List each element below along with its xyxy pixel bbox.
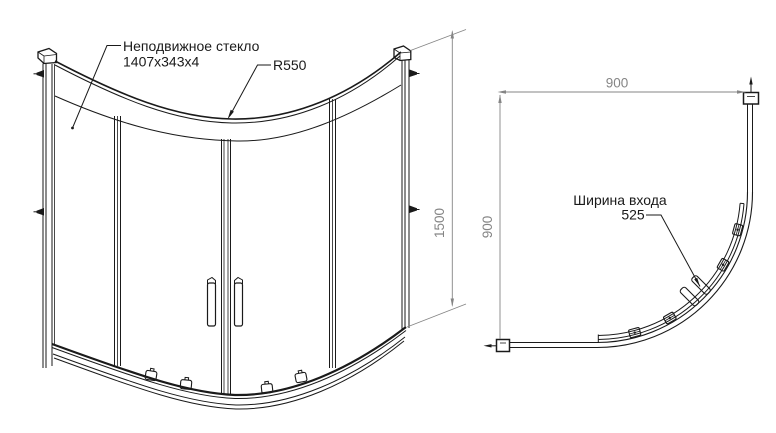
wall-bracket-right-bottom (410, 206, 420, 214)
width-dim-arrow-left (498, 90, 507, 93)
wall-bracket-left-top (34, 70, 45, 78)
drawing-canvas: Неподвижное стекло 1407x343x4 R550 1500 (0, 0, 776, 433)
front-view: Неподвижное стекло 1407x343x4 R550 1500 (34, 30, 467, 410)
technical-drawing-shower-enclosure: Неподвижное стекло 1407x343x4 R550 1500 (0, 0, 776, 433)
entry-width-leader-line (646, 215, 700, 287)
top-rail-lower-edge (55, 85, 401, 141)
entry-width-label: Ширина входа (573, 192, 667, 208)
dimension-depth: 900 (480, 95, 502, 340)
fixed-panel-stile-left (115, 116, 121, 366)
door-handle-left (208, 278, 216, 327)
fixed-glass-leader-dot (71, 127, 74, 130)
plan-door-handle-1 (679, 286, 700, 307)
bottom-rail-top-edge (52, 327, 406, 395)
plan-outer-arc (597, 192, 753, 348)
roller-wheel-4 (294, 370, 307, 383)
plan-wall-cap-right (744, 93, 759, 105)
wall-bracket-left-bottom (34, 208, 45, 216)
plan-view: 900 900 Ширина входа 525 (480, 76, 759, 352)
bottom-rail-line2 (52, 331, 406, 399)
fixed-glass-size-label: 1407x343x4 (123, 54, 200, 70)
dimension-width: 900 (498, 76, 746, 94)
fixed-panel-stile-right (330, 99, 336, 368)
height-dim-arrow-bottom (451, 299, 454, 308)
radius-label: R550 (273, 57, 307, 73)
wall-bracket-right-top (410, 70, 420, 78)
bottom-rail (52, 327, 406, 409)
plan-cap-right-marker-arrow (749, 77, 752, 85)
fixed-glass-leader-line (73, 46, 122, 129)
entry-width-annotation: Ширина входа 525 (573, 192, 700, 287)
wall-cap-right (394, 46, 411, 61)
plan-door-handle-2 (691, 275, 712, 296)
height-dim-ext-bottom (407, 304, 466, 327)
depth-dim-arrow-top (498, 95, 501, 104)
plan-wall-right (744, 77, 759, 193)
radius-leader-line (230, 65, 271, 116)
fixed-glass-label: Неподвижное стекло (123, 38, 260, 54)
top-rail (55, 52, 401, 141)
height-dim-text: 1500 (432, 208, 447, 238)
door-meeting-stiles-center (222, 139, 231, 395)
height-dim-ext-top (411, 30, 467, 51)
depth-dim-text: 900 (480, 216, 495, 239)
plan-cap-left-marker-arrow (484, 344, 492, 347)
width-dim-text: 900 (606, 76, 629, 91)
radius-leader-arrow (228, 110, 234, 120)
door-handle-right (235, 278, 243, 327)
wall-profile-left (34, 49, 57, 369)
plan-wall-cap-left (497, 340, 510, 352)
entry-width-leader-arrow (694, 278, 700, 287)
wall-cap-left-detail (38, 52, 57, 64)
bottom-rail-bottom-edge (54, 341, 404, 409)
entry-width-value: 525 (621, 207, 645, 223)
wall-profile-right (394, 46, 420, 329)
top-rail-outer-edge (55, 52, 401, 119)
plan-wall-bottom (484, 340, 598, 352)
